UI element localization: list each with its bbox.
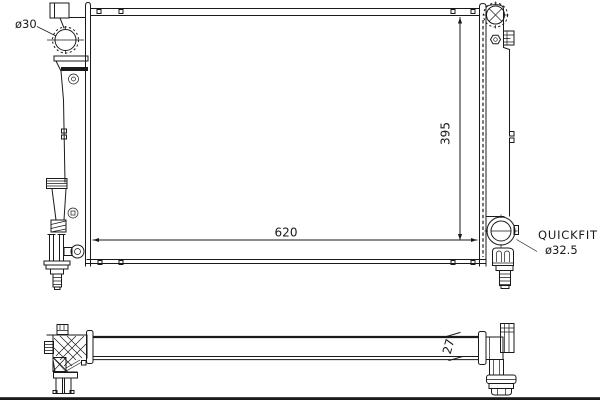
- left-bracket-assembly: [45, 325, 88, 394]
- ribbed-block-upper: [47, 179, 68, 189]
- left-tank: [44, 3, 88, 290]
- fastener-symbol-bottom: [68, 208, 78, 218]
- core-left-side-plate: [86, 3, 91, 267]
- side-connector: [504, 31, 515, 45]
- mounting-fork: [48, 235, 65, 262]
- core-strip-bottom: [93, 357, 479, 360]
- tank-body-outline: [56, 61, 65, 182]
- radiator-technical-drawing: 620 395 ø30 QUICKFIT ø32.5: [0, 0, 600, 400]
- core-bottom-edge: [87, 260, 487, 264]
- drawing-canvas: 620 395 ø30 QUICKFIT ø32.5: [0, 0, 600, 400]
- ribbed-block-lower: [51, 220, 66, 232]
- inlet-port: [47, 26, 84, 54]
- label-inlet-diameter: ø30: [15, 17, 37, 31]
- dimension-core-width: 620: [93, 226, 477, 243]
- fastener-symbol-top: [69, 74, 79, 84]
- drain-plug-left: [51, 269, 64, 290]
- front-view: 620 395 ø30 QUICKFIT ø32.5: [15, 2, 598, 290]
- hatching: [54, 336, 86, 372]
- right-end-plate: [479, 332, 487, 365]
- tank-outline: [486, 5, 510, 216]
- label-outlet-diameter: ø32.5: [545, 243, 578, 257]
- right-fitting-assembly: [486, 324, 516, 396]
- tank-top-plate: [54, 56, 88, 61]
- mounting-foot: [53, 378, 74, 394]
- side-fitting: [64, 245, 84, 258]
- callout-inlet-diameter: ø30: [15, 17, 56, 36]
- label-core-depth: 27: [440, 337, 457, 355]
- bleed-screw-hex: [491, 35, 501, 44]
- right-tank: [483, 2, 519, 289]
- gasket-bar: [61, 67, 88, 71]
- overflow-cap: [50, 3, 69, 18]
- tank-base-plate: [44, 261, 70, 265]
- drain-plug-right: [496, 266, 513, 289]
- core-top-edge: [91, 9, 480, 16]
- label-outlet-fitting: QUICKFIT: [538, 228, 598, 242]
- lower-bracket: [493, 248, 514, 266]
- bottom-view: 27: [45, 324, 517, 396]
- callout-quickfit: QUICKFIT ø32.5: [517, 228, 599, 257]
- dimension-core-height: 395: [439, 18, 463, 241]
- label-core-width: 620: [275, 226, 298, 240]
- label-core-height: 395: [439, 122, 453, 145]
- outlet-pipe-bottom: [487, 360, 517, 396]
- quickfit-port: [485, 215, 519, 248]
